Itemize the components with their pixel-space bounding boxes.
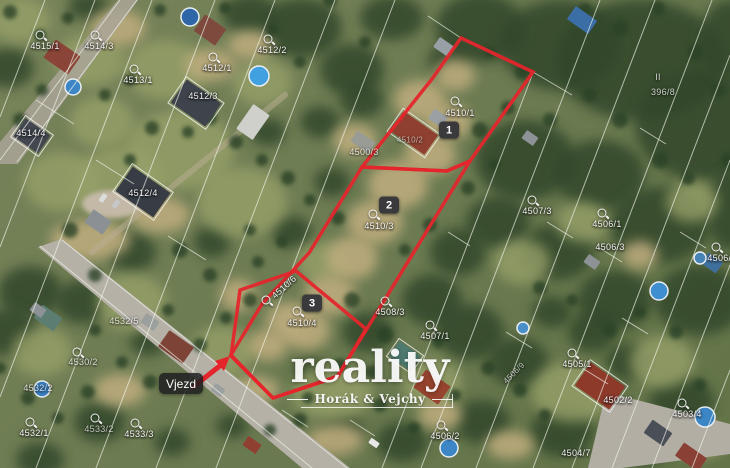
plot-marker-1[interactable]: 1 (439, 122, 459, 139)
entrance-label: Vjezd (159, 373, 203, 394)
plot-marker-3[interactable]: 3 (302, 295, 322, 312)
plot-markers-layer: 123 (0, 0, 730, 468)
satellite-map[interactable]: 4515/14514/34513/14512/14512/24512/34514… (0, 0, 730, 468)
plot-marker-2[interactable]: 2 (379, 197, 399, 214)
